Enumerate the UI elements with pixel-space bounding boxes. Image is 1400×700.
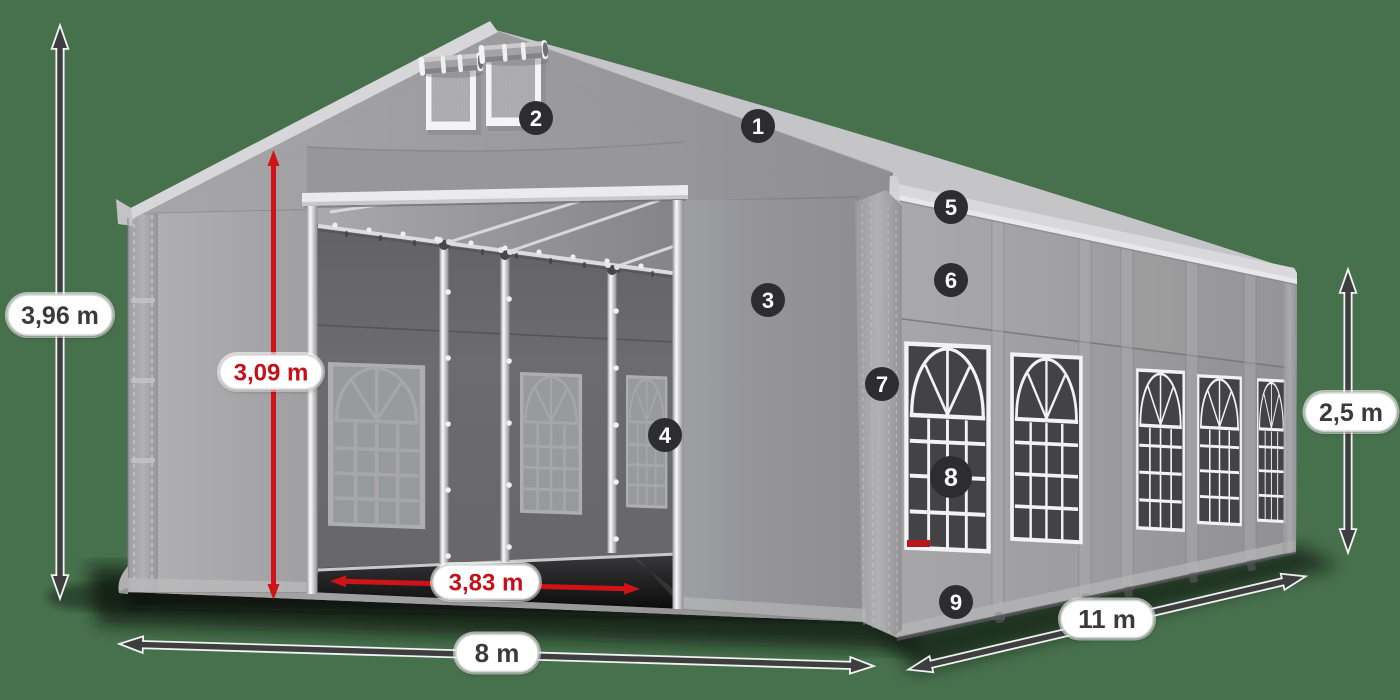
svg-text:3,83 m: 3,83 m (449, 569, 524, 596)
svg-text:1: 1 (752, 114, 764, 139)
svg-text:6: 6 (945, 268, 957, 293)
svg-text:2: 2 (530, 106, 542, 131)
svg-text:8 m: 8 m (475, 638, 520, 668)
svg-text:3: 3 (762, 288, 774, 313)
svg-text:11 m: 11 m (1078, 604, 1136, 634)
svg-text:9: 9 (950, 590, 962, 615)
svg-text:7: 7 (876, 372, 888, 397)
svg-text:8: 8 (944, 464, 958, 492)
svg-text:3,96 m: 3,96 m (21, 302, 99, 330)
svg-text:4: 4 (659, 423, 672, 448)
svg-text:2,5 m: 2,5 m (1319, 399, 1383, 427)
svg-text:5: 5 (945, 195, 957, 220)
svg-text:3,09 m: 3,09 m (234, 359, 309, 386)
